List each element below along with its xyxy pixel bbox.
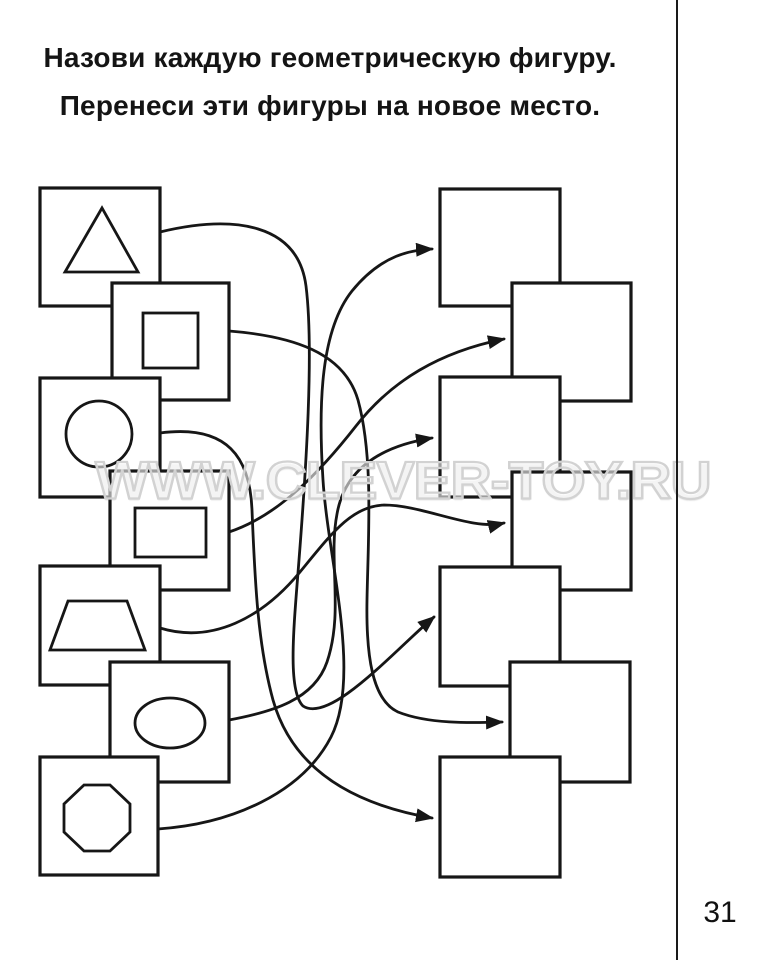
connector-oval-to-target3-arrow: [229, 438, 432, 720]
source-box-octagon: [40, 757, 158, 875]
page-edge-rule: [676, 0, 678, 960]
target-box-7: [440, 757, 560, 877]
matching-diagram: [0, 0, 784, 960]
worksheet-page: Назови каждую геометрическую фигуру. Пер…: [0, 0, 784, 960]
page-number: 31: [690, 896, 750, 930]
